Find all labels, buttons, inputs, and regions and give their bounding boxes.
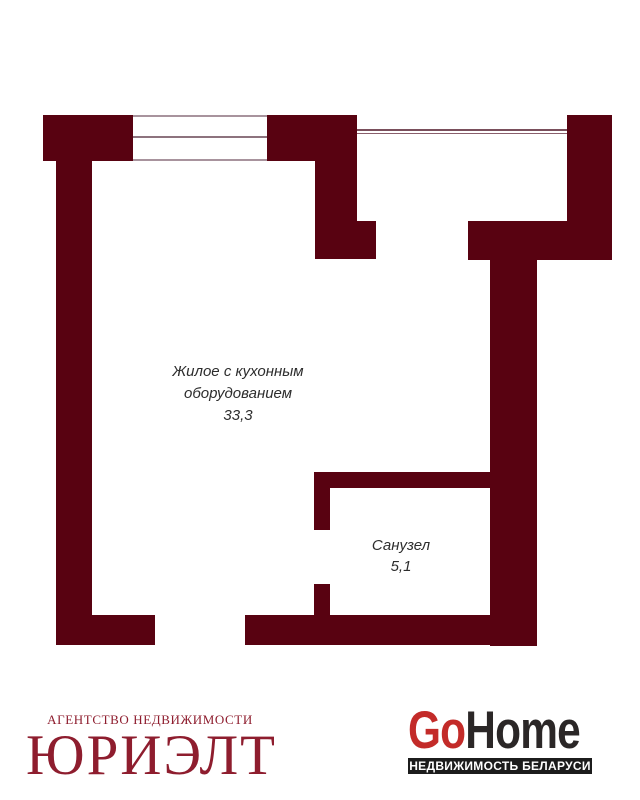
gohome-tagline-bar: НЕДВИЖИМОСТЬ БЕЛАРУСИ	[408, 758, 592, 774]
agency-logo: АГЕНТСТВО НЕДВИЖИМОСТИ ЮРИЭЛТ	[26, 712, 274, 782]
agency-name: ЮРИЭЛТ	[26, 730, 274, 782]
bathroom-wall-left-lower	[314, 584, 330, 615]
wall-mid-partition-foot	[315, 221, 376, 259]
main-room-label: Жилое с кухонным оборудованием 33,3	[128, 361, 348, 427]
wall-bottom-left-block	[56, 615, 155, 645]
window-main-mid-line	[133, 136, 267, 138]
wall-left	[56, 161, 92, 615]
bathroom-label: Санузел 5,1	[331, 535, 471, 577]
window-main	[133, 115, 267, 161]
gohome-wordmark: GoHome	[408, 706, 580, 756]
wall-top-mid-block	[267, 115, 357, 161]
gohome-wordmark-home: Home	[465, 701, 580, 760]
bathroom-label-name: Санузел	[331, 535, 471, 556]
balcony-window-line-upper	[357, 129, 567, 131]
main-room-label-line1: Жилое с кухонным	[128, 361, 348, 383]
floorplan-page: Жилое с кухонным оборудованием 33,3 Сану…	[0, 0, 640, 800]
gohome-logo: GoHome НЕДВИЖИМОСТЬ БЕЛАРУСИ	[408, 706, 608, 756]
bathroom-wall-left-upper	[314, 472, 330, 530]
wall-top-left-block	[43, 115, 133, 161]
bathroom-area: 5,1	[331, 556, 471, 577]
floor-plan: Жилое с кухонным оборудованием 33,3 Сану…	[0, 0, 640, 700]
wall-right	[490, 259, 537, 646]
bathroom-wall-top	[314, 472, 490, 488]
wall-bottom	[245, 615, 537, 645]
wall-mid-partition	[315, 161, 357, 221]
gohome-wordmark-go: Go	[408, 701, 465, 760]
main-room-label-line2: оборудованием	[128, 383, 348, 405]
wall-right-arm	[468, 221, 612, 260]
balcony-window-line-lower	[357, 133, 567, 134]
main-room-area: 33,3	[128, 405, 348, 427]
